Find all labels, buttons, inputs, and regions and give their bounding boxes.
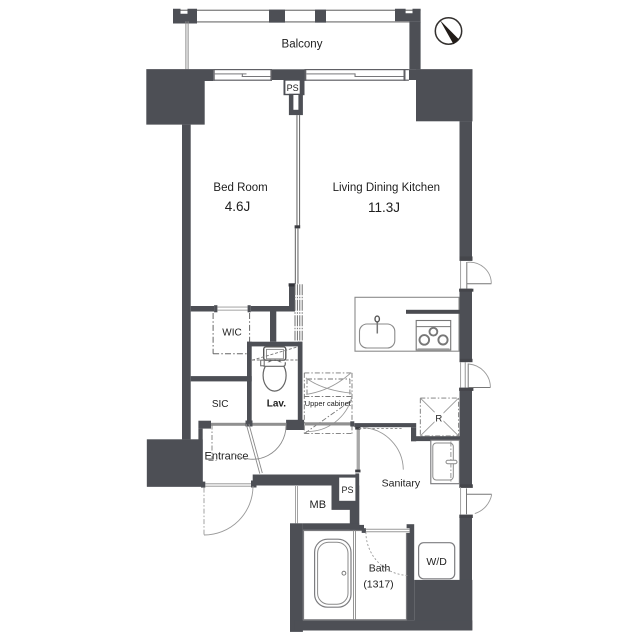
svg-text:Entrance: Entrance — [204, 451, 248, 463]
svg-text:Bed Room: Bed Room — [213, 182, 267, 194]
svg-text:PS: PS — [287, 83, 299, 93]
svg-text:MB: MB — [310, 499, 327, 511]
svg-text:W/D: W/D — [426, 556, 447, 568]
svg-text:Balcony: Balcony — [282, 39, 323, 51]
svg-text:WIC: WIC — [222, 328, 241, 339]
svg-text:Living Dining Kitchen: Living Dining Kitchen — [333, 182, 440, 194]
svg-text:Upper cabinet: Upper cabinet — [305, 399, 351, 408]
svg-text:R: R — [435, 414, 442, 425]
svg-text:11.3J: 11.3J — [368, 200, 400, 215]
svg-text:4.6J: 4.6J — [225, 199, 251, 214]
svg-text:Sanitary: Sanitary — [382, 478, 421, 490]
svg-text:(1317): (1317) — [363, 579, 393, 591]
svg-text:SIC: SIC — [212, 399, 229, 410]
svg-text:Bath: Bath — [369, 563, 391, 575]
svg-text:PS: PS — [341, 485, 353, 495]
svg-text:Lav.: Lav. — [267, 399, 286, 410]
